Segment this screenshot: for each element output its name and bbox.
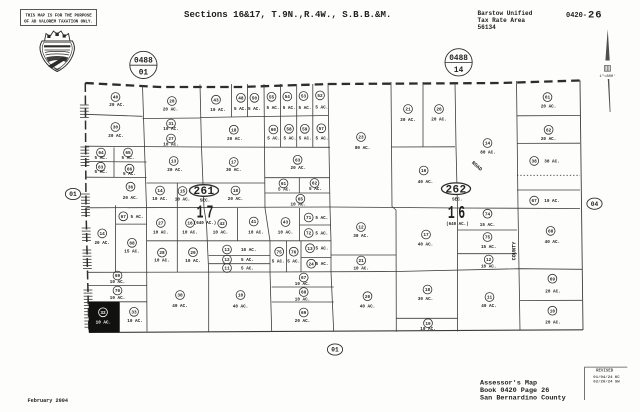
svg-text:40: 40 <box>113 96 119 101</box>
svg-text:14: 14 <box>454 67 464 75</box>
svg-text:5 AC.: 5 AC. <box>122 156 135 161</box>
svg-text:56134: 56134 <box>478 24 497 31</box>
svg-text:THIS MAP IS FOR THE PURPOSE: THIS MAP IS FOR THE PURPOSE <box>25 15 92 19</box>
svg-text:5 AC.: 5 AC. <box>248 107 261 112</box>
svg-text:20 AC.: 20 AC. <box>227 137 242 142</box>
svg-text:11: 11 <box>224 267 230 272</box>
svg-text:20 AC.: 20 AC. <box>123 196 138 201</box>
svg-text:14: 14 <box>485 142 491 147</box>
svg-text:38: 38 <box>532 160 538 165</box>
svg-text:10 AC.: 10 AC. <box>185 259 200 264</box>
svg-text:261: 261 <box>193 186 214 198</box>
svg-text:262: 262 <box>445 184 466 196</box>
svg-text:San Bernardino County: San Bernardino County <box>480 395 566 403</box>
svg-text:75: 75 <box>485 236 491 241</box>
svg-text:20 AC.: 20 AC. <box>545 289 560 294</box>
svg-text:68: 68 <box>301 291 307 296</box>
svg-text:40 AC.: 40 AC. <box>360 305 375 310</box>
svg-text:76: 76 <box>291 250 297 255</box>
svg-text:20 AC.: 20 AC. <box>163 108 178 113</box>
svg-text:33: 33 <box>131 310 137 315</box>
svg-text:5 AC.: 5 AC. <box>287 259 300 264</box>
svg-text:(640 AC.): (640 AC.) <box>446 222 469 227</box>
svg-text:Sections 16&17, T.9N.,R.4W., S: Sections 16&17, T.9N.,R.4W., S.B.B.&M. <box>184 9 391 20</box>
svg-text:0488: 0488 <box>134 58 153 66</box>
svg-text:14: 14 <box>157 189 163 194</box>
svg-text:REVISED: REVISED <box>596 369 614 373</box>
svg-text:57: 57 <box>319 127 325 132</box>
svg-text:5 AC.: 5 AC. <box>95 170 108 175</box>
svg-text:80 AC.: 80 AC. <box>355 146 370 151</box>
svg-text:10 AC.: 10 AC. <box>152 197 167 202</box>
svg-text:62: 62 <box>546 128 552 133</box>
svg-text:10 AC.: 10 AC. <box>96 320 111 325</box>
svg-text:16: 16 <box>421 169 427 174</box>
svg-text:21: 21 <box>405 108 411 113</box>
svg-text:10 AC.: 10 AC. <box>248 230 263 235</box>
svg-text:60: 60 <box>271 128 277 133</box>
svg-text:5 AC.: 5 AC. <box>309 187 322 192</box>
svg-text:72: 72 <box>306 232 312 237</box>
svg-text:28: 28 <box>159 251 165 256</box>
svg-text:15 AC.: 15 AC. <box>124 250 139 255</box>
svg-text:17: 17 <box>231 161 237 166</box>
svg-text:30: 30 <box>177 294 183 299</box>
svg-text:01: 01 <box>139 70 149 78</box>
svg-text:5 AC.: 5 AC. <box>278 187 291 192</box>
svg-text:(640 AC.): (640 AC.) <box>194 221 217 226</box>
svg-text:68: 68 <box>548 230 554 235</box>
svg-text:5 AC.: 5 AC. <box>267 137 280 142</box>
svg-text:59: 59 <box>302 127 308 132</box>
svg-text:12: 12 <box>224 258 230 263</box>
svg-text:10 AC.: 10 AC. <box>163 142 178 147</box>
svg-text:Tax Rate Area: Tax Rate Area <box>478 17 526 24</box>
svg-text:1: 1 <box>448 202 455 224</box>
svg-text:40 AC.: 40 AC. <box>418 180 433 185</box>
svg-text:5 AC.: 5 AC. <box>272 259 285 264</box>
svg-text:10 AC.: 10 AC. <box>353 266 368 271</box>
svg-text:50: 50 <box>252 96 258 101</box>
svg-text:11: 11 <box>487 296 493 301</box>
svg-text:10 AC.: 10 AC. <box>175 197 190 202</box>
svg-text:61: 61 <box>281 182 287 187</box>
svg-text:13: 13 <box>307 247 313 252</box>
svg-text:10 AC.: 10 AC. <box>110 280 125 285</box>
svg-text:10 AC.: 10 AC. <box>153 230 168 235</box>
svg-text:04: 04 <box>591 201 599 208</box>
svg-text:55: 55 <box>269 95 275 100</box>
svg-text:10: 10 <box>238 294 244 299</box>
svg-text:5 AC.: 5 AC. <box>241 258 254 263</box>
svg-text:18: 18 <box>425 288 431 293</box>
svg-text:40 AC.: 40 AC. <box>233 305 248 310</box>
svg-text:1: 1 <box>197 202 204 224</box>
svg-text:5 AC.: 5 AC. <box>315 106 328 111</box>
svg-text:20 AC.: 20 AC. <box>167 168 182 173</box>
svg-text:5 AC.: 5 AC. <box>234 107 247 112</box>
svg-text:23: 23 <box>358 136 364 141</box>
svg-text:24: 24 <box>309 262 315 267</box>
svg-text:10 AC.: 10 AC. <box>127 319 142 324</box>
svg-text:20 AC.: 20 AC. <box>545 320 560 325</box>
svg-text:12: 12 <box>486 258 492 263</box>
svg-text:5 AC.: 5 AC. <box>95 156 108 161</box>
svg-text:5 AC.: 5 AC. <box>123 172 136 177</box>
svg-text:16: 16 <box>187 222 193 227</box>
svg-text:7: 7 <box>206 202 213 224</box>
svg-text:69: 69 <box>115 274 121 279</box>
svg-text:14: 14 <box>100 232 106 237</box>
svg-text:48: 48 <box>238 96 244 101</box>
svg-text:15 AC.: 15 AC. <box>480 223 495 228</box>
svg-text:65: 65 <box>298 197 304 202</box>
svg-text:15 AC.: 15 AC. <box>481 245 496 250</box>
svg-text:70: 70 <box>115 289 121 294</box>
svg-text:53: 53 <box>301 95 307 100</box>
svg-text:20 AC.: 20 AC. <box>431 118 446 123</box>
svg-text:10 AC.: 10 AC. <box>291 203 306 208</box>
svg-text:68: 68 <box>129 241 135 246</box>
svg-text:32: 32 <box>100 311 106 316</box>
svg-text:61: 61 <box>545 96 551 101</box>
svg-text:74: 74 <box>485 212 491 217</box>
svg-text:67: 67 <box>121 215 127 220</box>
svg-text:5 AC.: 5 AC. <box>316 247 329 252</box>
svg-text:12: 12 <box>358 226 364 231</box>
svg-text:18: 18 <box>231 128 237 133</box>
svg-text:01: 01 <box>69 191 77 198</box>
svg-text:20 AC.: 20 AC. <box>109 103 124 108</box>
svg-text:10 AC.: 10 AC. <box>295 282 310 287</box>
svg-text:26: 26 <box>436 108 442 113</box>
svg-text:30 AC.: 30 AC. <box>418 297 433 302</box>
svg-text:0420-: 0420- <box>566 12 587 20</box>
svg-text:5 AC.: 5 AC. <box>241 267 254 272</box>
svg-text:20 AC.: 20 AC. <box>541 137 556 142</box>
svg-text:01/04/24 KC: 01/04/24 KC <box>593 375 620 380</box>
svg-text:20 AC.: 20 AC. <box>541 105 556 110</box>
svg-text:15: 15 <box>180 190 186 195</box>
svg-text:58: 58 <box>286 127 292 132</box>
svg-text:1"=800': 1"=800' <box>600 74 616 79</box>
svg-text:54: 54 <box>285 95 291 100</box>
svg-text:21: 21 <box>359 259 365 264</box>
svg-text:5 AC.: 5 AC. <box>315 216 328 221</box>
svg-text:01: 01 <box>331 347 339 354</box>
svg-text:20: 20 <box>365 295 371 300</box>
svg-text:5 AC.: 5 AC. <box>283 106 296 111</box>
svg-text:41: 41 <box>251 220 257 225</box>
svg-text:40 AC.: 40 AC. <box>418 243 433 248</box>
svg-text:69: 69 <box>550 277 556 282</box>
svg-text:20 AC.: 20 AC. <box>295 319 310 324</box>
svg-text:10 AC.: 10 AC. <box>278 231 293 236</box>
svg-text:5 AC.: 5 AC. <box>299 106 312 111</box>
svg-text:52: 52 <box>317 94 323 99</box>
svg-text:10 AC.: 10 AC. <box>420 327 435 332</box>
svg-text:20 AC.: 20 AC. <box>94 241 109 246</box>
svg-text:5 AC.: 5 AC. <box>299 137 312 142</box>
svg-text:29: 29 <box>190 251 196 256</box>
svg-text:10 AC.: 10 AC. <box>163 127 178 132</box>
svg-text:62: 62 <box>312 182 318 187</box>
svg-text:13: 13 <box>171 160 177 165</box>
svg-text:26: 26 <box>588 10 603 22</box>
svg-text:5 AC.: 5 AC. <box>267 106 280 111</box>
svg-text:69: 69 <box>301 311 307 316</box>
svg-text:Barstow Unified: Barstow Unified <box>478 10 533 17</box>
svg-text:5 AC.: 5 AC. <box>316 262 329 267</box>
svg-text:17: 17 <box>423 233 429 238</box>
svg-text:20 AC.: 20 AC. <box>108 134 123 139</box>
svg-text:36: 36 <box>128 185 134 190</box>
svg-text:30: 30 <box>113 126 119 131</box>
svg-text:30 AC.: 30 AC. <box>226 168 241 173</box>
svg-text:10 AC.: 10 AC. <box>210 108 225 113</box>
svg-text:10 AC.: 10 AC. <box>182 230 197 235</box>
svg-text:40 AC.: 40 AC. <box>545 240 560 245</box>
svg-text:10 AC.: 10 AC. <box>154 259 169 264</box>
svg-text:5 AC.: 5 AC. <box>315 232 328 237</box>
svg-text:20 AC.: 20 AC. <box>228 197 243 202</box>
svg-text:43: 43 <box>283 221 289 226</box>
svg-text:13: 13 <box>224 248 230 253</box>
svg-text:20: 20 <box>169 100 175 105</box>
svg-text:30 AC.: 30 AC. <box>353 234 368 239</box>
svg-text:20 AC.: 20 AC. <box>291 166 306 171</box>
svg-text:67: 67 <box>532 199 538 204</box>
svg-text:10 AC.: 10 AC. <box>241 248 256 253</box>
svg-text:20 AC.: 20 AC. <box>400 118 415 123</box>
svg-text:40 AC.: 40 AC. <box>481 304 496 309</box>
svg-text:0488: 0488 <box>449 55 468 63</box>
svg-text:30 AC.: 30 AC. <box>544 159 559 164</box>
svg-text:5 AC.: 5 AC. <box>131 215 144 220</box>
svg-text:18: 18 <box>233 189 239 194</box>
svg-text:80 AC.: 80 AC. <box>480 151 495 156</box>
svg-text:10 AC.: 10 AC. <box>213 231 228 236</box>
svg-text:February 2004: February 2004 <box>28 398 68 404</box>
svg-text:75: 75 <box>277 250 283 255</box>
svg-text:6: 6 <box>458 202 465 224</box>
svg-text:10 AC.: 10 AC. <box>110 296 125 301</box>
svg-text:71: 71 <box>306 216 312 221</box>
svg-text:63: 63 <box>295 158 301 163</box>
svg-text:10 AC.: 10 AC. <box>295 297 310 302</box>
svg-text:67: 67 <box>301 276 307 281</box>
svg-text:5 AC.: 5 AC. <box>283 137 296 142</box>
svg-text:10: 10 <box>550 309 556 314</box>
svg-text:OF AD VALOREM TAXATION ONLY.: OF AD VALOREM TAXATION ONLY. <box>24 21 93 25</box>
svg-text:40 AC.: 40 AC. <box>172 304 187 309</box>
svg-text:02/20/24 SW: 02/20/24 SW <box>593 380 620 385</box>
svg-text:5 AC.: 5 AC. <box>316 136 329 141</box>
svg-text:COUNTY: COUNTY <box>512 241 518 261</box>
svg-text:27: 27 <box>158 222 164 227</box>
svg-text:42: 42 <box>220 222 226 227</box>
svg-text:10 AC.: 10 AC. <box>481 265 496 270</box>
svg-text:10 AC.: 10 AC. <box>544 199 559 204</box>
svg-text:43: 43 <box>213 98 219 103</box>
